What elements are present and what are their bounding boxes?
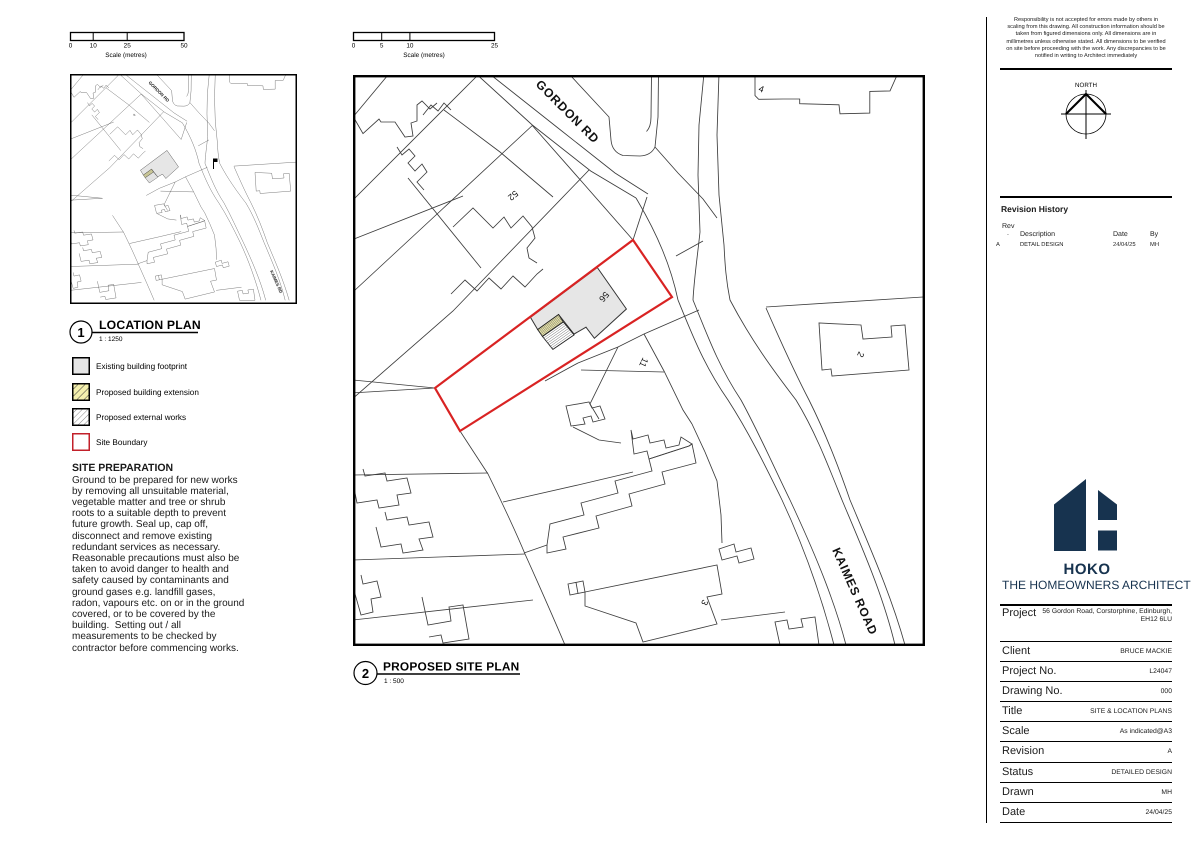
svg-text:52: 52: [506, 188, 520, 202]
svg-text:1 : 500: 1 : 500: [384, 678, 404, 685]
svg-text:NORTH: NORTH: [1075, 82, 1097, 89]
svg-text:11: 11: [637, 356, 650, 369]
svg-text:0: 0: [69, 43, 73, 50]
svg-text:Scale (metres): Scale (metres): [105, 52, 147, 59]
svg-text:KAIMES RD: KAIMES RD: [269, 270, 283, 294]
svg-text:5: 5: [380, 43, 384, 50]
svg-text:0: 0: [352, 43, 356, 50]
svg-text:1: 1: [77, 325, 84, 340]
svg-text:2: 2: [855, 350, 866, 359]
svg-text:KAIMES ROAD: KAIMES ROAD: [829, 546, 880, 638]
svg-text:25: 25: [491, 43, 499, 50]
svg-text:Proposed external works: Proposed external works: [96, 413, 186, 422]
svg-text:25: 25: [124, 43, 132, 50]
svg-text:10: 10: [90, 43, 98, 50]
svg-text:10: 10: [406, 43, 414, 50]
svg-text:3: 3: [699, 598, 710, 607]
svg-text:50: 50: [180, 43, 188, 50]
svg-text:1 : 1250: 1 : 1250: [99, 336, 123, 343]
svg-text:PROPOSED SITE PLAN: PROPOSED SITE PLAN: [383, 660, 519, 674]
svg-text:Existing building footprint: Existing building footprint: [96, 362, 188, 371]
svg-text:2: 2: [362, 666, 369, 681]
svg-text:LOCATION PLAN: LOCATION PLAN: [99, 318, 201, 332]
svg-text:Proposed building extension: Proposed building extension: [96, 388, 199, 397]
svg-text:GORDON RD: GORDON RD: [147, 80, 170, 103]
svg-text:9: 9: [132, 113, 136, 117]
svg-text:4: 4: [757, 83, 765, 94]
svg-text:Scale (metres): Scale (metres): [403, 52, 445, 59]
svg-text:Site Boundary: Site Boundary: [96, 438, 148, 447]
